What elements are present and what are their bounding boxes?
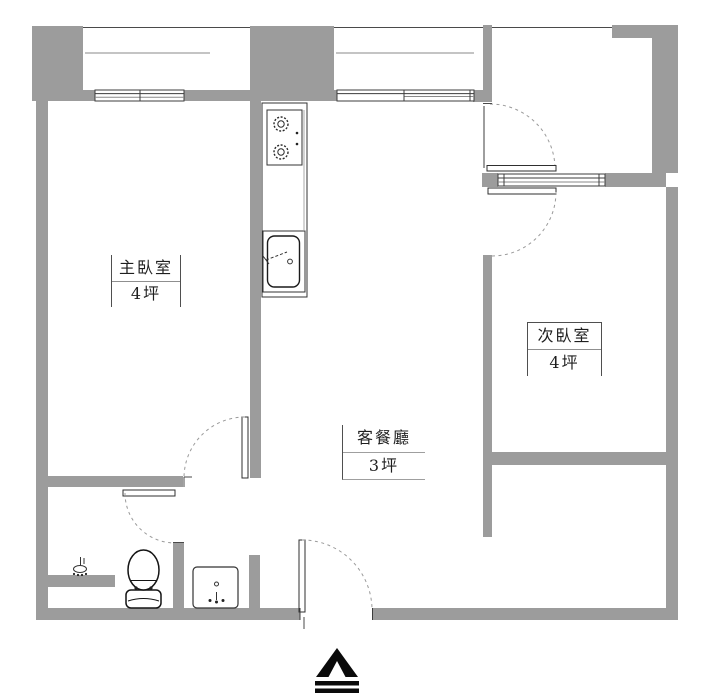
wall-bathroom-door-side bbox=[173, 543, 184, 608]
room-name: 客餐廳 bbox=[343, 425, 425, 453]
toilet-icon bbox=[126, 550, 161, 608]
door-kitchen-to-balcony bbox=[483, 104, 556, 172]
wall-basin-niche bbox=[249, 555, 260, 608]
label-second-bedroom: 次臥室 4坪 bbox=[527, 322, 602, 376]
door-living-balcony-exit bbox=[299, 540, 373, 629]
wall-master-living bbox=[250, 101, 261, 478]
wall-living-bedroom bbox=[483, 255, 492, 537]
room-name: 主臥室 bbox=[112, 255, 180, 282]
room-area: 3坪 bbox=[343, 453, 425, 480]
wall-top-right-corner bbox=[612, 25, 652, 38]
stove-icon bbox=[267, 110, 302, 165]
door-master-bedroom bbox=[184, 417, 248, 487]
door-bathroom bbox=[123, 490, 184, 543]
room-area: 4坪 bbox=[528, 350, 601, 376]
wall-band-b bbox=[184, 90, 250, 101]
shower-head-icon bbox=[73, 557, 87, 576]
door-living-to-bedroom bbox=[488, 188, 556, 256]
label-living-dining: 客餐廳 3坪 bbox=[342, 425, 425, 480]
label-master-bedroom: 主臥室 4坪 bbox=[111, 255, 181, 307]
facade-lines bbox=[83, 28, 652, 54]
wall-top-mid-pillar bbox=[250, 26, 334, 101]
floor-plan: 主臥室 4坪 次臥室 4坪 客餐廳 3坪 bbox=[0, 0, 723, 700]
wall-left bbox=[36, 101, 48, 620]
wall-band-a bbox=[83, 90, 95, 101]
wall-top-left-pillar bbox=[32, 26, 83, 101]
window-master bbox=[95, 90, 184, 101]
wall-right-upper-thick bbox=[652, 25, 678, 173]
window-bedroom-balcony bbox=[498, 174, 605, 186]
wall-bathroom-top bbox=[36, 476, 183, 487]
wall-entry-upper bbox=[483, 25, 492, 102]
wall-shower-stub bbox=[36, 575, 115, 587]
kitchen-sink-icon bbox=[263, 231, 305, 292]
wall-bottom-left bbox=[36, 608, 300, 620]
wall-bedroom-bottom bbox=[491, 452, 666, 465]
floor-plan-drawing bbox=[0, 0, 723, 700]
wall-bottom-right bbox=[373, 608, 678, 620]
north-arrow bbox=[315, 648, 359, 693]
room-area: 4坪 bbox=[112, 282, 180, 308]
wall-window-left-stub bbox=[482, 173, 498, 187]
wall-right-lower bbox=[666, 187, 678, 620]
wall-window-right-seg bbox=[605, 173, 666, 187]
window-living bbox=[337, 90, 474, 101]
wash-basin-icon bbox=[193, 567, 238, 608]
room-name: 次臥室 bbox=[528, 323, 601, 350]
